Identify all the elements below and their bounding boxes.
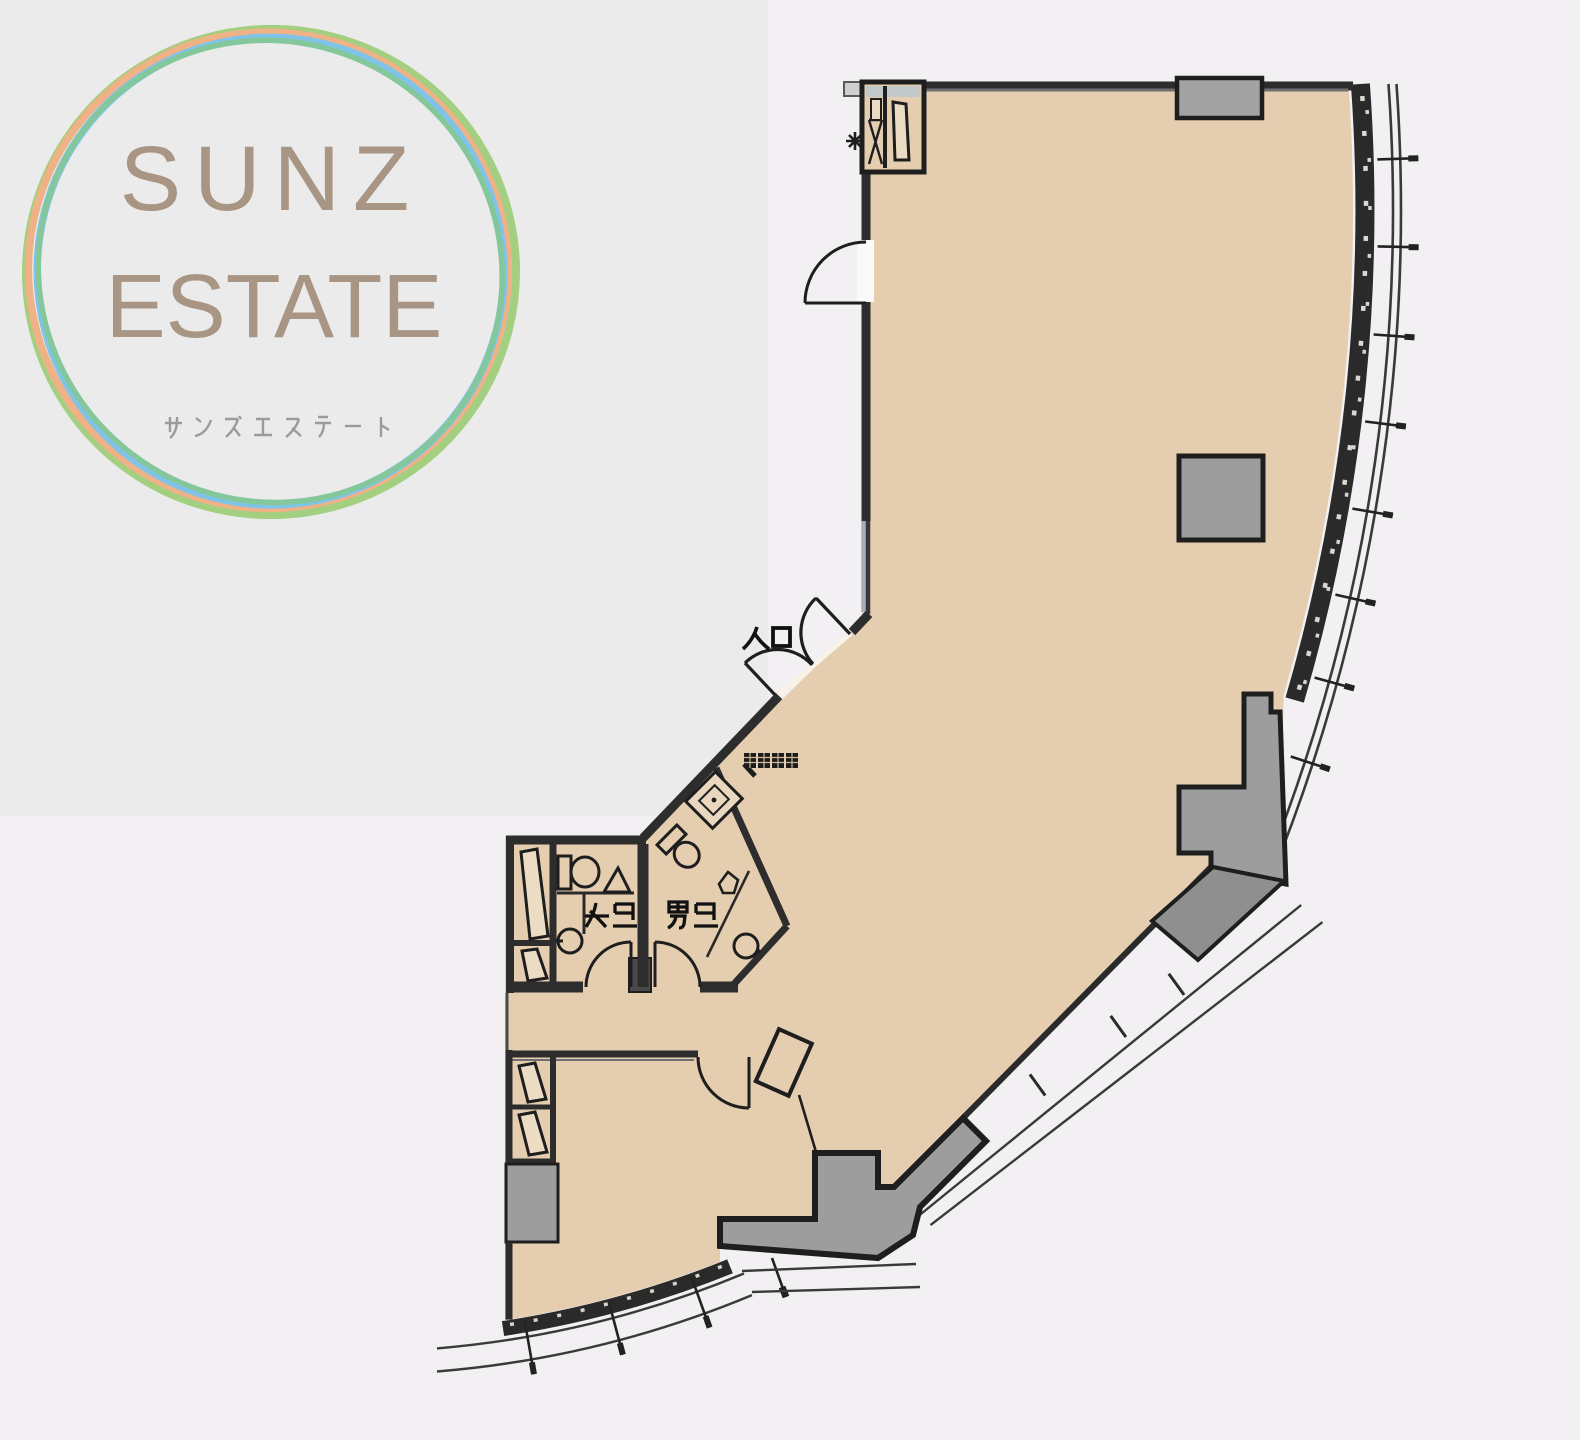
svg-text:SUNZ: SUNZ <box>120 128 422 230</box>
svg-text:ESTATE: ESTATE <box>106 257 443 357</box>
